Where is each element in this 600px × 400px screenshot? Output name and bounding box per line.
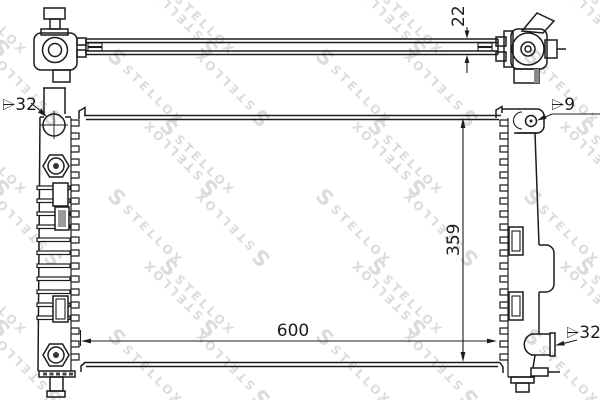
core-right-gasket xyxy=(500,118,508,377)
inlet-port-top-view xyxy=(43,38,68,63)
dim-outlet-diameter: ⌲32 xyxy=(555,323,600,346)
front-view: 359 600 ⌲32 ⌲9 xyxy=(2,88,600,397)
hex-plug-lower xyxy=(43,344,69,366)
right-end-fitting xyxy=(496,13,566,83)
tank-bracket-lower xyxy=(53,296,68,322)
core-left-gasket xyxy=(71,118,79,371)
bottom-foot xyxy=(511,377,534,383)
mounting-bracket-tab xyxy=(539,245,554,292)
bottom-stub xyxy=(50,377,63,391)
dim-outlet-diameter-label: ⌲32 xyxy=(566,323,600,343)
dim-core-width-label: 600 xyxy=(277,321,309,341)
arrowhead xyxy=(81,339,91,344)
dim-core-width: 600 xyxy=(81,321,498,346)
dim-bracket-hole-diameter: ⌲9 xyxy=(537,95,600,121)
dim-bracket-hole-diameter-label: ⌲9 xyxy=(551,95,575,115)
dim-core-height: 359 xyxy=(444,118,465,362)
core-top-view-tube xyxy=(86,39,498,55)
dim-inlet-diameter: ⌲32 xyxy=(2,95,47,117)
dim-core-height-label: 359 xyxy=(444,224,464,256)
arrowhead xyxy=(487,339,497,344)
outlet-port-top-view xyxy=(512,33,544,65)
radiator-technical-drawing: SSTELLOXSSTELLOXSSTELLOXSSTELLOXSSTELLOX… xyxy=(0,0,600,400)
arrowhead xyxy=(555,341,565,346)
dim-core-thickness-label: 22 xyxy=(449,5,469,27)
lower-stub-pipe xyxy=(531,368,548,376)
arrowhead xyxy=(461,352,466,362)
angled-bracket-top-view xyxy=(522,13,554,33)
right-tank xyxy=(496,107,560,393)
drawing-canvas: 22 xyxy=(0,0,600,400)
dim-inlet-diameter-label: ⌲32 xyxy=(2,95,37,115)
tank-bracket-upper xyxy=(53,183,68,206)
left-tank xyxy=(37,88,75,397)
left-end-fitting xyxy=(34,8,86,82)
hex-plug-upper xyxy=(43,155,69,177)
arrowhead xyxy=(465,31,470,39)
arrowhead xyxy=(465,55,470,63)
outlet-pipe xyxy=(524,333,555,356)
top-view: 22 xyxy=(34,5,566,83)
